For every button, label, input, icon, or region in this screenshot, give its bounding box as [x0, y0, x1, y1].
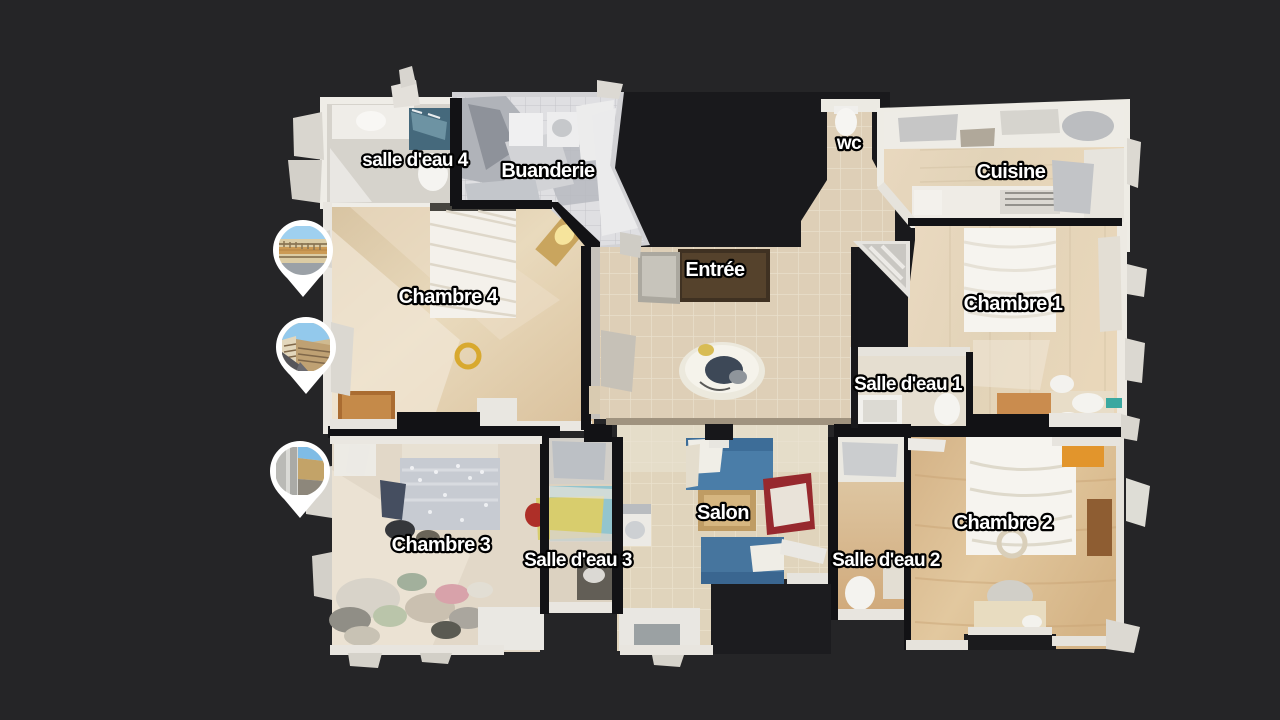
svg-text:Chambre 3: Chambre 3: [392, 534, 491, 556]
svg-text:Chambre 1: Chambre 1: [964, 293, 1063, 315]
svg-text:Salle d'eau 3: Salle d'eau 3: [524, 550, 632, 571]
svg-text:Chambre 2: Chambre 2: [954, 512, 1053, 534]
svg-text:Salle d'eau 2: Salle d'eau 2: [832, 550, 940, 571]
svg-text:wc: wc: [836, 133, 862, 154]
svg-text:Salon: Salon: [697, 502, 749, 524]
svg-text:Buanderie: Buanderie: [501, 160, 595, 182]
svg-text:Cuisine: Cuisine: [977, 161, 1046, 183]
svg-text:salle d'eau 4: salle d'eau 4: [362, 150, 469, 171]
svg-text:Salle d'eau 1: Salle d'eau 1: [854, 374, 963, 395]
svg-text:Entrée: Entrée: [685, 259, 745, 281]
svg-text:Chambre 4: Chambre 4: [399, 286, 499, 308]
